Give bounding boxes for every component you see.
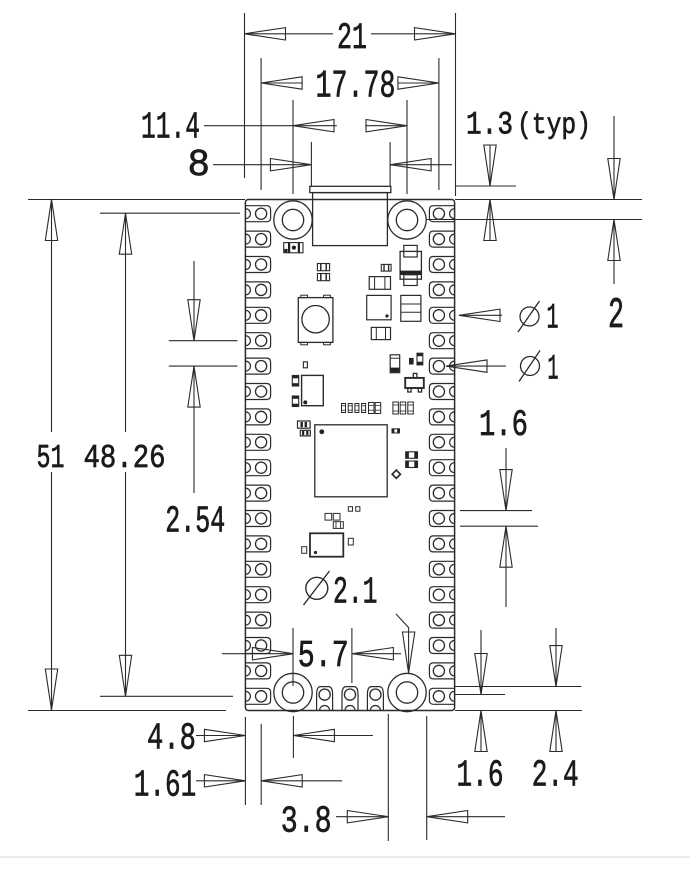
svg-text:1: 1 bbox=[547, 299, 559, 339]
svg-text:2.4: 2.4 bbox=[532, 755, 579, 798]
svg-text:1: 1 bbox=[548, 350, 559, 390]
svg-text:8: 8 bbox=[188, 144, 211, 187]
svg-text:17.78: 17.78 bbox=[316, 64, 396, 108]
svg-text:2.54: 2.54 bbox=[165, 501, 225, 544]
svg-text:51: 51 bbox=[37, 440, 65, 477]
svg-text:21: 21 bbox=[337, 18, 367, 60]
svg-text:1.3: 1.3 bbox=[466, 107, 513, 144]
svg-text:1.61: 1.61 bbox=[134, 765, 197, 808]
svg-text:1.6: 1.6 bbox=[457, 755, 504, 798]
svg-text:(typ): (typ) bbox=[517, 109, 591, 143]
svg-text:5.7: 5.7 bbox=[298, 635, 349, 678]
svg-text:4.8: 4.8 bbox=[147, 718, 196, 761]
svg-text:48.26: 48.26 bbox=[84, 440, 166, 477]
svg-text:3.8: 3.8 bbox=[281, 801, 332, 844]
svg-text:2.1: 2.1 bbox=[333, 572, 378, 615]
svg-text:2: 2 bbox=[608, 291, 624, 341]
svg-text:1.6: 1.6 bbox=[479, 405, 528, 447]
